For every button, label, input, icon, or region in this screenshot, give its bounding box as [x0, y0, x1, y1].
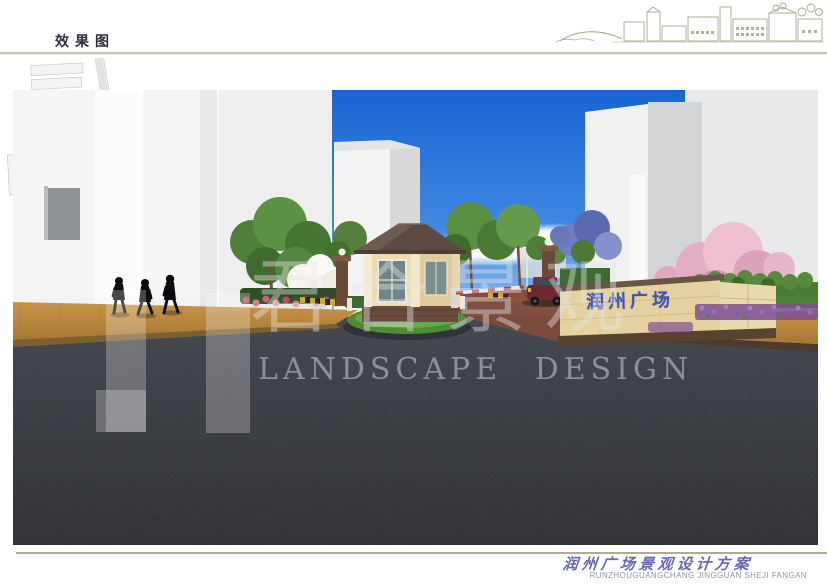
- presentation-board: 效果图: [0, 0, 827, 585]
- project-subtitle: RUNZHOUGUANGCHANG JINGGUAN SHEJI FANGAN: [590, 571, 807, 580]
- watermark-logo-block: [96, 390, 146, 432]
- watermark-logo-bar: [206, 293, 250, 433]
- watermark-logo-text-cn: 君合景观: [250, 258, 642, 338]
- watermark-logo-text-en: LANDSCAPE DESIGN: [258, 352, 693, 387]
